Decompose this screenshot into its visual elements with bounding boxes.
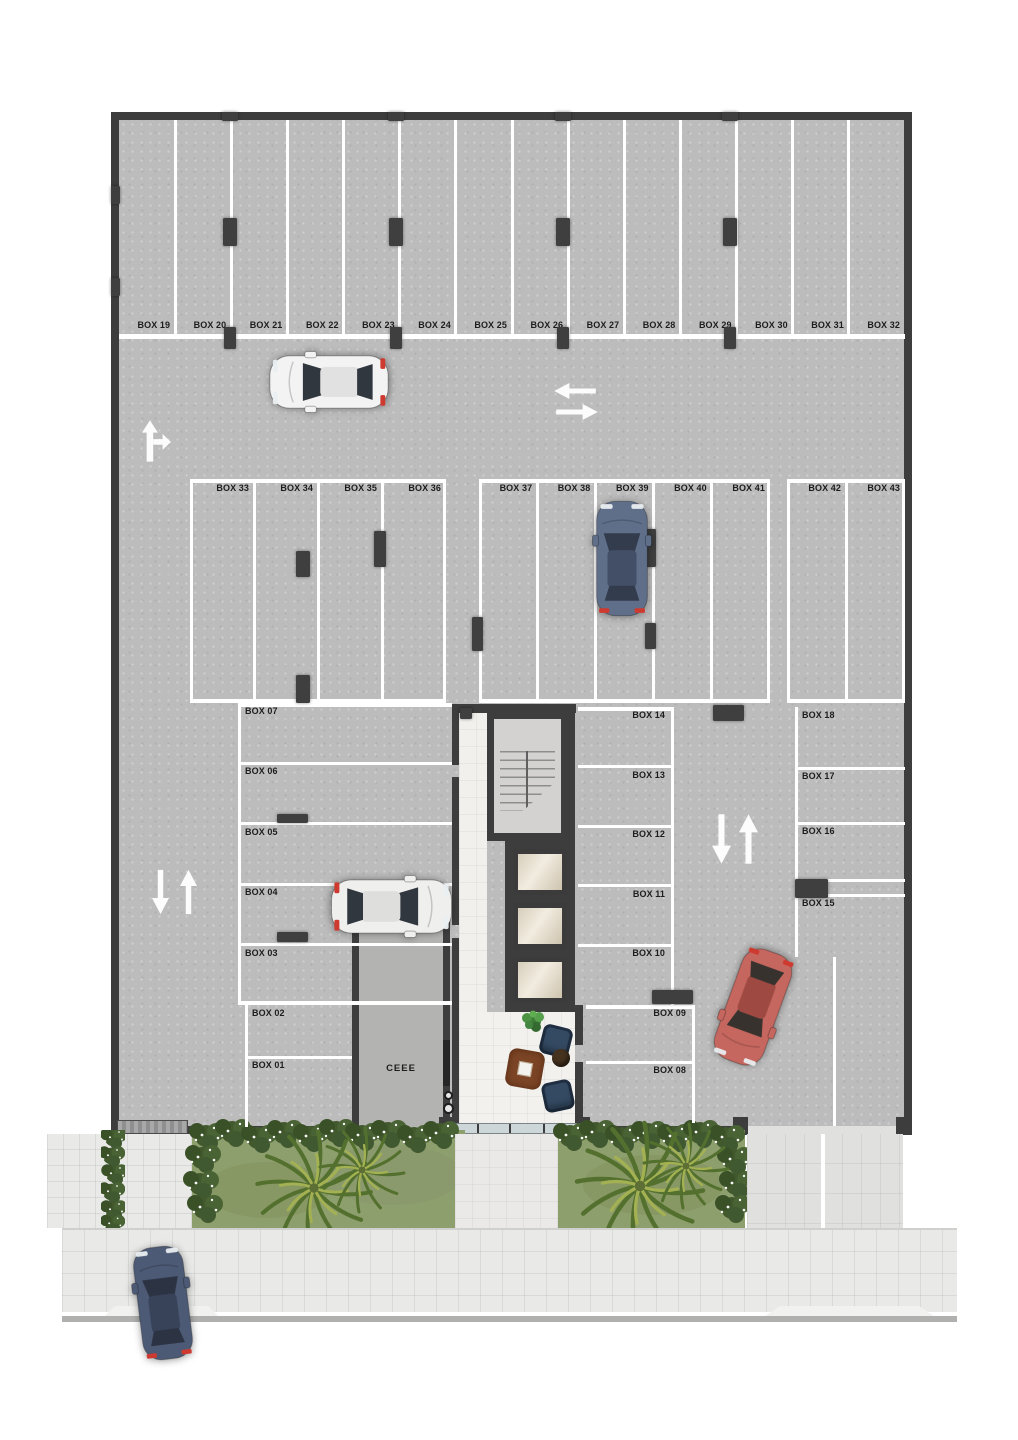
parking-line — [845, 479, 848, 703]
parking-stall-label: BOX 41 — [715, 484, 765, 493]
column-pillar — [277, 814, 308, 823]
core-wall-left — [452, 713, 459, 765]
car-icon-white-sedan-top-aisle — [264, 351, 394, 413]
column-pillar — [296, 675, 310, 703]
parking-stall-label: BOX 08 — [593, 1066, 686, 1075]
parking-line — [767, 479, 770, 703]
parking-line — [795, 822, 905, 825]
column-pillar — [277, 932, 308, 942]
parking-line — [795, 707, 798, 957]
parking-stall-label: BOX 36 — [385, 484, 441, 493]
core-corridor — [459, 713, 487, 1012]
column-pillar — [111, 186, 120, 204]
curb-line — [62, 1316, 957, 1322]
column-pillar — [555, 112, 571, 121]
parking-stall-label: BOX 20 — [178, 321, 226, 330]
parking-line — [479, 479, 482, 703]
parking-line — [586, 1005, 695, 1009]
parking-line — [710, 479, 713, 703]
parking-line — [454, 120, 457, 339]
column-pillar — [722, 112, 738, 121]
mullion — [509, 1124, 511, 1133]
parking-stall-label: BOX 31 — [796, 321, 844, 330]
lane-line — [833, 957, 836, 1126]
column-pillar — [390, 327, 402, 349]
column-pillar — [389, 218, 403, 246]
parking-stall-label: BOX 26 — [515, 321, 563, 330]
parking-line — [847, 120, 850, 339]
up-arrow-icon — [739, 814, 758, 864]
straight-or-right-arrow-icon — [141, 420, 171, 462]
parking-line — [902, 479, 905, 703]
parking-line — [511, 120, 514, 339]
utility-meter-icon — [443, 1103, 454, 1114]
column-pillar — [224, 327, 236, 349]
sidewalk — [62, 1228, 957, 1312]
parking-line — [578, 884, 674, 887]
parking-stall-label: BOX 34 — [257, 484, 313, 493]
parking-stall-label: BOX 05 — [245, 828, 443, 837]
down-arrow-icon — [152, 869, 169, 915]
rug-icon — [504, 1047, 546, 1091]
mullion — [543, 1124, 545, 1133]
garage-floor-plan: CEEE BOX 19BOX 20BOX 21BOX 22BOX 23BOX 2 — [0, 0, 1018, 1440]
parking-line — [578, 765, 674, 768]
parking-stall-label: BOX 19 — [122, 321, 170, 330]
parking-stall-label: BOX 39 — [598, 484, 648, 493]
parking-line — [787, 479, 905, 483]
parking-line — [238, 703, 241, 1005]
parking-stall-label: BOX 12 — [585, 830, 665, 839]
parking-stall-label: BOX 43 — [849, 484, 900, 493]
parking-line — [342, 120, 345, 339]
right-arrow-icon — [555, 404, 599, 420]
parking-stall-group-mid_right: BOX 42BOX 43 — [787, 479, 905, 703]
column-pillar — [222, 112, 238, 121]
down-arrow-icon — [712, 814, 731, 864]
parking-stall-label: BOX 10 — [585, 949, 665, 958]
parking-line — [479, 479, 770, 483]
armchair-icon — [540, 1078, 576, 1114]
parking-line — [679, 120, 682, 339]
parking-stall-label: BOX 11 — [585, 890, 665, 899]
elevator-icon — [513, 849, 567, 895]
parking-stall-label: BOX 32 — [852, 321, 900, 330]
parking-line — [787, 479, 790, 703]
parking-stall-label: BOX 40 — [657, 484, 707, 493]
column-pillar — [713, 705, 744, 721]
parking-line — [317, 479, 320, 703]
parking-stall-group-center_lower: BOX 09BOX 08 — [586, 1005, 695, 1123]
column-pillar — [645, 623, 656, 649]
parking-stall-label: BOX 03 — [245, 949, 443, 958]
elevator-icon — [513, 903, 567, 949]
parking-stall-group-west: BOX 07BOX 06BOX 05BOX 04BOX 03 — [238, 703, 452, 1005]
parking-stall-label: BOX 07 — [245, 707, 443, 716]
parking-stall-label: BOX 28 — [627, 321, 675, 330]
lobby-wall-right — [575, 1005, 583, 1045]
car-icon-white-hatchback-box04 — [326, 875, 457, 938]
garden-right — [558, 1130, 745, 1229]
column-pillar — [460, 708, 472, 719]
parking-line — [692, 1005, 695, 1123]
core-wall-left — [452, 938, 459, 1012]
parking-stall-label: BOX 24 — [403, 321, 451, 330]
ottoman-icon — [552, 1049, 570, 1067]
parking-stall-label: BOX 06 — [245, 767, 443, 776]
parking-stall-label: BOX 37 — [482, 484, 532, 493]
parking-line — [253, 479, 256, 703]
hedge-icon — [101, 1130, 125, 1229]
parking-line — [381, 479, 384, 703]
entry-apron — [455, 1134, 560, 1228]
column-pillar — [724, 327, 736, 349]
parking-stall-label: BOX 01 — [252, 1061, 343, 1070]
parking-line — [238, 762, 452, 765]
up-arrow-icon — [180, 869, 197, 915]
parking-stall-label: BOX 21 — [234, 321, 282, 330]
column-pillar — [652, 990, 693, 1004]
parking-line — [578, 944, 674, 947]
column-pillar — [795, 879, 828, 898]
coffee-table — [517, 1061, 533, 1077]
parking-stall-label: BOX 30 — [740, 321, 788, 330]
parking-line — [443, 479, 446, 703]
car-icon-blue-suv-box39 — [592, 498, 652, 619]
parking-stall-label: BOX 13 — [585, 771, 665, 780]
parking-line — [245, 1005, 248, 1127]
service-gate — [117, 1120, 188, 1134]
parking-line — [578, 707, 674, 711]
stairwell — [487, 712, 568, 841]
parking-stall-label: BOX 16 — [802, 827, 896, 836]
parking-line — [652, 479, 655, 703]
parking-stall-label: BOX 17 — [802, 772, 896, 781]
column-pillar — [556, 218, 570, 246]
parking-stall-label: BOX 25 — [459, 321, 507, 330]
parking-line — [119, 334, 905, 339]
parking-line — [623, 120, 626, 339]
parking-stall-group-center: BOX 14BOX 13BOX 12BOX 11BOX 10 — [578, 707, 674, 1005]
parking-stall-label: BOX 22 — [290, 321, 338, 330]
parking-line — [791, 120, 794, 339]
column-pillar — [111, 278, 120, 296]
parking-line — [586, 1061, 695, 1064]
parking-stall-group-west_lower: BOX 02BOX 01 — [245, 1005, 352, 1127]
column-pillar — [374, 531, 386, 567]
parking-line — [795, 767, 905, 770]
electrical-room-label: CEEE — [359, 1063, 443, 1074]
parking-stall-group-east: BOX 18BOX 17BOX 16BOX 15 — [795, 707, 905, 957]
parking-line — [671, 707, 674, 1005]
vehicle-entrance-opening — [747, 1126, 903, 1134]
parking-stall-label: BOX 27 — [571, 321, 619, 330]
driveway — [747, 1134, 903, 1228]
column-pillar — [296, 551, 310, 577]
column-pillar — [723, 218, 737, 246]
column-pillar — [388, 112, 404, 121]
parking-stall-label: BOX 38 — [540, 484, 590, 493]
parking-line — [190, 479, 193, 703]
parking-line — [479, 699, 770, 703]
parking-stall-group-mid_left: BOX 33BOX 34BOX 35BOX 36 — [190, 479, 446, 703]
parking-stall-label: BOX 18 — [802, 711, 896, 720]
parking-stall-label: BOX 42 — [790, 484, 841, 493]
wall-post — [896, 1117, 912, 1135]
stair-rail — [526, 751, 528, 811]
parking-line — [578, 825, 674, 828]
parking-line — [238, 943, 452, 946]
electrical-room-door — [443, 1040, 450, 1086]
parking-stall-label: BOX 15 — [802, 899, 896, 908]
parking-line — [787, 699, 905, 703]
parking-stall-label: BOX 02 — [252, 1009, 343, 1018]
lobby-wall-right — [575, 1062, 583, 1124]
mullion — [477, 1124, 479, 1133]
parking-stall-label: BOX 14 — [585, 711, 665, 720]
driveway-center-line — [821, 1134, 825, 1228]
column-pillar — [472, 617, 483, 651]
utility-meter-icon — [444, 1091, 453, 1100]
left-arrow-icon — [553, 383, 597, 399]
parking-line — [190, 479, 446, 483]
column-pillar — [557, 327, 569, 349]
elevator-icon — [513, 957, 567, 1003]
garden-left — [192, 1130, 465, 1229]
stair-wall-bottom — [487, 833, 568, 841]
parking-line — [536, 479, 539, 703]
parking-line — [238, 822, 452, 825]
parking-line — [238, 703, 452, 707]
parking-stall-label: BOX 23 — [347, 321, 395, 330]
parking-stall-label: BOX 09 — [593, 1009, 686, 1018]
parking-stall-label: BOX 35 — [321, 484, 377, 493]
parking-line — [286, 120, 289, 339]
parking-line — [245, 1056, 352, 1059]
parking-line — [174, 120, 177, 339]
parking-stall-label: BOX 33 — [193, 484, 249, 493]
column-pillar — [223, 218, 237, 246]
